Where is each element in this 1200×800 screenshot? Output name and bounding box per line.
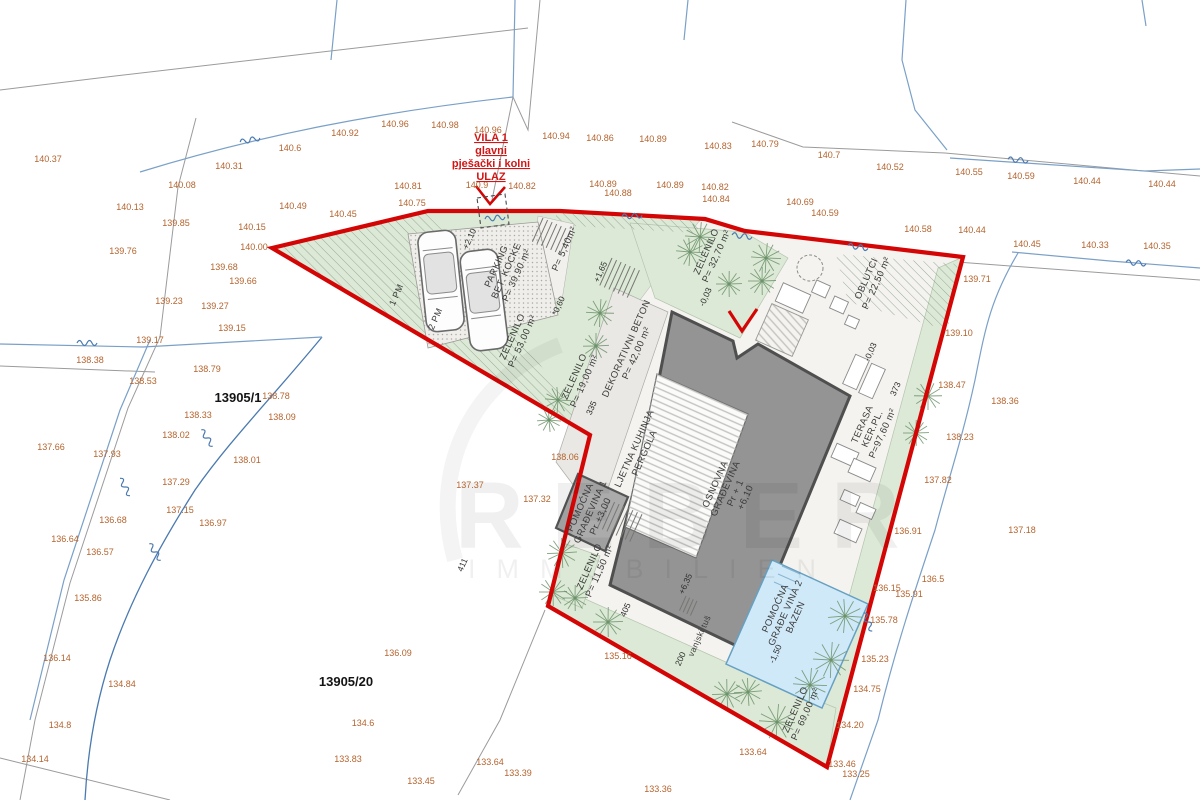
spot-elevation: 140.35 bbox=[1143, 241, 1171, 251]
spot-elevation: 133.64 bbox=[476, 757, 504, 767]
spot-elevation: 139.76 bbox=[109, 246, 137, 256]
parcel-number: 13905/20 bbox=[319, 674, 373, 689]
spot-elevation: 140.52 bbox=[876, 162, 904, 172]
spot-elevation: 136.97 bbox=[199, 518, 227, 528]
spot-elevation: 138.06 bbox=[551, 452, 579, 462]
spot-elevation: 138.78 bbox=[262, 391, 290, 401]
spot-elevation: 135.16 bbox=[604, 651, 632, 661]
spot-elevation: 136.64 bbox=[51, 534, 79, 544]
spot-elevation: 140.58 bbox=[904, 224, 932, 234]
spot-elevation: 140.6 bbox=[279, 143, 302, 153]
spot-elevation: 140.45 bbox=[329, 209, 357, 219]
spot-elevation: 140.89 bbox=[639, 134, 667, 144]
spot-elevation: 138.38 bbox=[76, 355, 104, 365]
spot-elevation: 140.81 bbox=[394, 181, 422, 191]
spot-elevation: 133.39 bbox=[504, 768, 532, 778]
spot-elevation: 140.44 bbox=[958, 225, 986, 235]
spot-elevation: 134.84 bbox=[108, 679, 136, 689]
spot-elevation: 133.36 bbox=[644, 784, 672, 794]
spot-elevation: 133.25 bbox=[842, 769, 870, 779]
spot-elevation: 133.83 bbox=[334, 754, 362, 764]
spot-elevation: 138.01 bbox=[233, 455, 261, 465]
spot-elevation: 136.68 bbox=[99, 515, 127, 525]
spot-elevation: 136.5 bbox=[922, 574, 945, 584]
spot-elevation: 135.78 bbox=[870, 615, 898, 625]
spot-elevation: 136.91 bbox=[894, 526, 922, 536]
entrance-label-text: VILA 1glavnipješački i kolniULAZ bbox=[452, 132, 530, 183]
spot-elevation: 140.55 bbox=[955, 167, 983, 177]
spot-elevation: 138.09 bbox=[268, 412, 296, 422]
spot-elevation: 137.37 bbox=[456, 480, 484, 490]
spot-elevation: 134.14 bbox=[21, 754, 49, 764]
spot-elevation: 138.23 bbox=[946, 432, 974, 442]
parcel-number: 13905/1 bbox=[215, 390, 262, 405]
spot-elevation: 140.75 bbox=[398, 198, 426, 208]
spot-elevation: 135.23 bbox=[861, 654, 889, 664]
spot-elevation: 139.85 bbox=[162, 218, 190, 228]
spot-elevation: 140.49 bbox=[279, 201, 307, 211]
spot-elevation: 138.02 bbox=[162, 430, 190, 440]
spot-elevation: 133.45 bbox=[407, 776, 435, 786]
spot-elevation: 139.66 bbox=[229, 276, 257, 286]
spot-elevation: 139.17 bbox=[136, 335, 164, 345]
spot-elevation: 133.46 bbox=[828, 759, 856, 769]
spot-elevation: 140.08 bbox=[168, 180, 196, 190]
spot-elevation: 139.68 bbox=[210, 262, 238, 272]
spot-elevation: 140.92 bbox=[331, 128, 359, 138]
spot-elevation: 140.84 bbox=[702, 194, 730, 204]
spot-elevation: 133.64 bbox=[739, 747, 767, 757]
spot-elevation: 140.94 bbox=[542, 131, 570, 141]
spot-elevation: 140.82 bbox=[508, 181, 536, 191]
site-plan-drawing: REBER IMMOBILIEN 140.37140.6140.31140.08… bbox=[0, 0, 1200, 800]
spot-elevation: 139.10 bbox=[945, 328, 973, 338]
spot-elevation: 135.86 bbox=[74, 593, 102, 603]
watermark-sub: IMMOBILIEN bbox=[468, 554, 837, 584]
spot-elevation: 138.79 bbox=[193, 364, 221, 374]
entrance-label: VILA 1glavnipješački i kolniULAZ bbox=[452, 132, 530, 183]
contour-label-icon bbox=[77, 341, 97, 346]
spot-elevation: 135.91 bbox=[895, 589, 923, 599]
spot-elevation: 139.23 bbox=[155, 296, 183, 306]
spot-elevation: 140.44 bbox=[1148, 179, 1176, 189]
spot-elevation: 137.66 bbox=[37, 442, 65, 452]
spot-elevation: 138.33 bbox=[184, 410, 212, 420]
spot-elevation: 137.93 bbox=[93, 449, 121, 459]
spot-elevation: 134.75 bbox=[853, 684, 881, 694]
spot-elevation: 140.44 bbox=[1073, 176, 1101, 186]
spot-elevation: 140.82 bbox=[701, 182, 729, 192]
spot-elevation: 137.82 bbox=[924, 475, 952, 485]
spot-elevation: 134.8 bbox=[49, 720, 72, 730]
spot-elevation: 134.6 bbox=[352, 718, 375, 728]
spot-elevation: 139.71 bbox=[963, 274, 991, 284]
spot-elevation: 138.47 bbox=[938, 380, 966, 390]
spot-elevation: 140.45 bbox=[1013, 239, 1041, 249]
spot-elevation: 139.27 bbox=[201, 301, 229, 311]
spot-elevation: 137.15 bbox=[166, 505, 194, 515]
contour-label-icon bbox=[118, 477, 132, 497]
spot-elevation: 140.88 bbox=[604, 188, 632, 198]
spot-elevation: 139.15 bbox=[218, 323, 246, 333]
spot-elevation: 136.09 bbox=[384, 648, 412, 658]
spot-elevation: 137.32 bbox=[523, 494, 551, 504]
contour-label-icon bbox=[199, 428, 215, 447]
spot-elevation: 138.53 bbox=[129, 376, 157, 386]
spot-elevation: 140.86 bbox=[586, 133, 614, 143]
spot-elevation: 140.98 bbox=[431, 120, 459, 130]
spot-elevation: 137.18 bbox=[1008, 525, 1036, 535]
spot-elevation: 140.59 bbox=[1007, 171, 1035, 181]
site-plan-page: REBER IMMOBILIEN 140.37140.6140.31140.08… bbox=[0, 0, 1200, 800]
spot-elevation: 134.20 bbox=[836, 720, 864, 730]
spot-elevation: 140.79 bbox=[751, 139, 779, 149]
spot-elevation: 140.00 bbox=[240, 242, 268, 252]
spot-elevation: 136.14 bbox=[43, 653, 71, 663]
spot-elevation: 140.7 bbox=[818, 150, 841, 160]
spot-elevation: 138.36 bbox=[991, 396, 1019, 406]
spot-elevation: 140.59 bbox=[811, 208, 839, 218]
spot-elevation: 140.89 bbox=[656, 180, 684, 190]
spot-elevation: 140.83 bbox=[704, 141, 732, 151]
spot-elevation: 140.15 bbox=[238, 222, 266, 232]
spot-elevation: 137.29 bbox=[162, 477, 190, 487]
spot-elevation: 140.13 bbox=[116, 202, 144, 212]
spot-elevation: 140.31 bbox=[215, 161, 243, 171]
spot-elevation: 140.69 bbox=[786, 197, 814, 207]
spot-elevation: 136.57 bbox=[86, 547, 114, 557]
spot-elevation: 140.33 bbox=[1081, 240, 1109, 250]
spot-elevation: 140.37 bbox=[34, 154, 62, 164]
spot-elevation: 140.96 bbox=[381, 119, 409, 129]
